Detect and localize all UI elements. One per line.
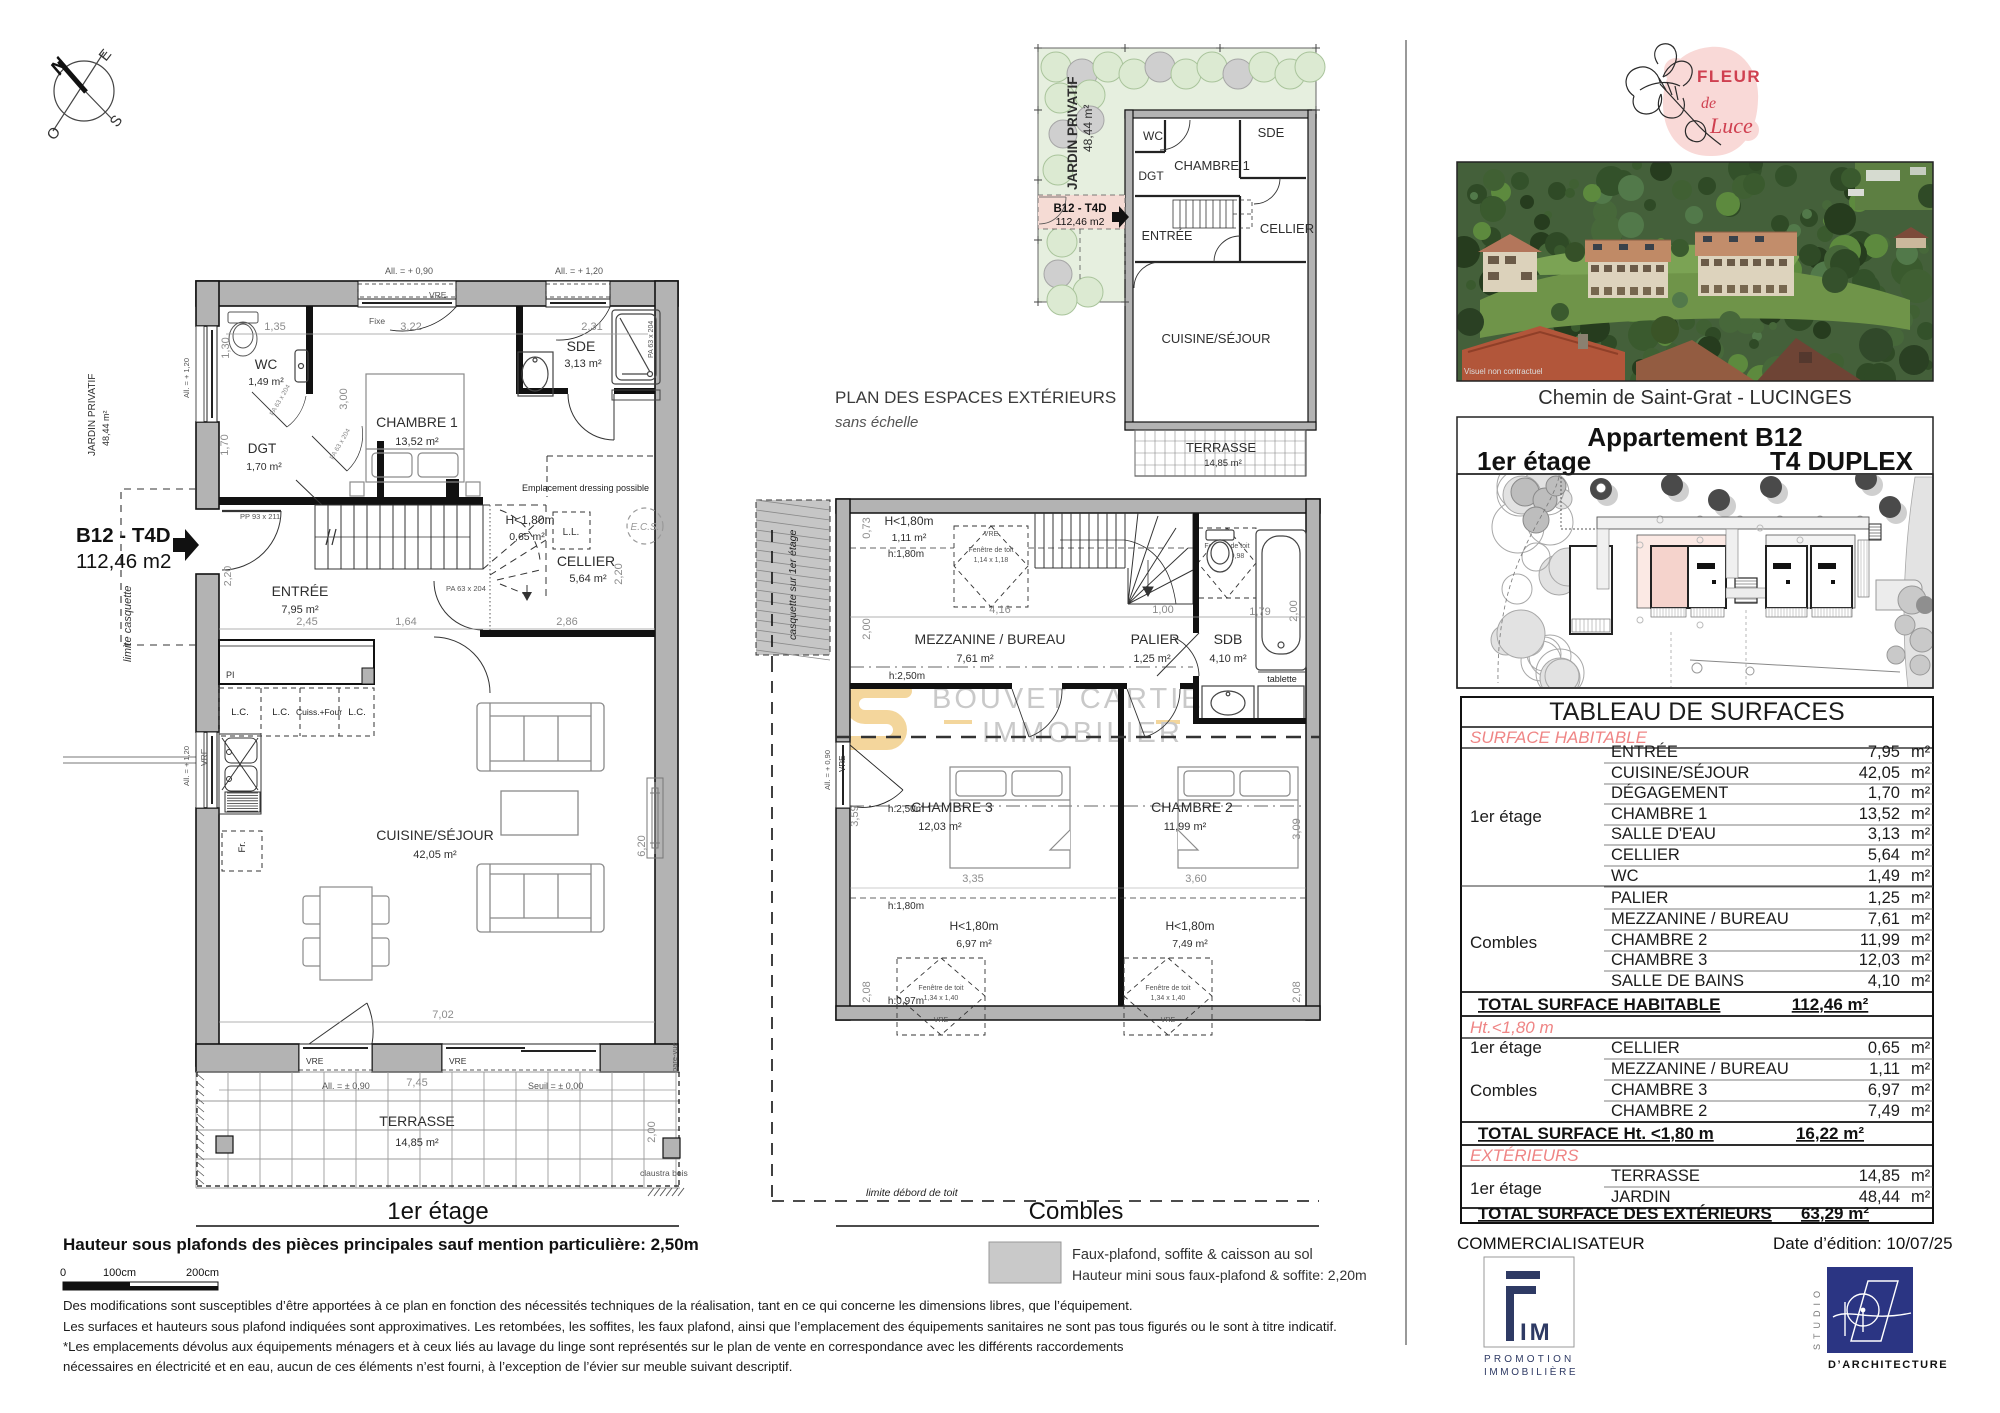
svg-text:1,00: 1,00 — [1152, 604, 1173, 616]
svg-text:13,52: 13,52 — [1859, 805, 1900, 823]
svg-text:TOTAL SURFACE HABITABLE: TOTAL SURFACE HABITABLE — [1478, 995, 1720, 1014]
svg-text:VRE: VRE — [199, 748, 209, 766]
svg-text:PLAN DES ESPACES EXTÉRIEURS: PLAN DES ESPACES EXTÉRIEURS — [835, 388, 1116, 407]
svg-text:h:2,50m: h:2,50m — [888, 804, 924, 815]
svg-text:Faux-plafond, soffite & caisso: Faux-plafond, soffite & caisson au sol — [1072, 1247, 1313, 1263]
svg-text:COMMERCIALISATEUR: COMMERCIALISATEUR — [1457, 1234, 1645, 1253]
svg-text:m²: m² — [1911, 1081, 1931, 1099]
svg-text:ENTRÉE: ENTRÉE — [272, 583, 329, 599]
svg-text:CELLIER: CELLIER — [1260, 221, 1314, 236]
svg-text:0,73: 0,73 — [861, 517, 873, 538]
svg-text:1er étage: 1er étage — [1470, 1179, 1542, 1198]
svg-text:m²: m² — [1911, 867, 1931, 885]
svg-text:All. = + 1,20: All. = + 1,20 — [182, 358, 191, 398]
svg-text:L.L.: L.L. — [563, 527, 580, 538]
svg-text:7,95: 7,95 — [1868, 743, 1900, 761]
svg-text:Fr.: Fr. — [237, 841, 248, 852]
svg-text:m²: m² — [1911, 910, 1931, 928]
svg-text:Fenêtre de toit: Fenêtre de toit — [918, 985, 963, 992]
svg-text:Combles: Combles — [1470, 1081, 1537, 1100]
svg-text:MEZZANINE / BUREAU: MEZZANINE / BUREAU — [1611, 1060, 1789, 1078]
svg-text:5,64 m²: 5,64 m² — [569, 573, 607, 585]
svg-text:2,00: 2,00 — [646, 1121, 658, 1142]
svg-text:S: S — [107, 112, 127, 130]
svg-text:2,00: 2,00 — [1288, 600, 1300, 621]
svg-text:0,65: 0,65 — [1868, 1039, 1900, 1057]
svg-text:TOTAL SURFACE DES EXTÉRIEURS: TOTAL SURFACE DES EXTÉRIEURS — [1478, 1204, 1772, 1223]
svg-text:1,70: 1,70 — [219, 434, 231, 455]
svg-text:PP 93 x 211: PP 93 x 211 — [240, 512, 280, 521]
svg-text:All. = + 0,90: All. = + 0,90 — [385, 266, 433, 276]
svg-text:Date d’édition: 10/07/25: Date d’édition: 10/07/25 — [1773, 1234, 1953, 1253]
svg-text:6,97 m²: 6,97 m² — [956, 938, 992, 950]
svg-text:TERRASSE: TERRASSE — [1186, 440, 1256, 455]
svg-text:CHAMBRE 2: CHAMBRE 2 — [1151, 799, 1233, 815]
svg-text:PROMOTION: PROMOTION — [1484, 1354, 1574, 1365]
svg-text:H<1,80m: H<1,80m — [884, 514, 933, 528]
svg-text:m²: m² — [1911, 931, 1931, 949]
svg-text:200cm: 200cm — [186, 1267, 219, 1279]
svg-text:SALLE D'EAU: SALLE D'EAU — [1611, 825, 1716, 843]
svg-text:5,64: 5,64 — [1868, 846, 1900, 864]
svg-text:2,08: 2,08 — [1291, 981, 1303, 1002]
svg-text:H<1,80m: H<1,80m — [505, 513, 554, 527]
svg-text:CHAMBRE 1: CHAMBRE 1 — [376, 414, 458, 430]
svg-text:1,34 x 1,40: 1,34 x 1,40 — [924, 995, 959, 1002]
svg-text:de: de — [1701, 95, 1716, 112]
svg-text:7,02: 7,02 — [432, 1009, 453, 1021]
svg-text:Fixe: Fixe — [369, 316, 385, 326]
svg-text:Chemin de Saint-Grat - LUCINGE: Chemin de Saint-Grat - LUCINGES — [1538, 387, 1851, 409]
svg-text:MEZZANINE / BUREAU: MEZZANINE / BUREAU — [1611, 910, 1789, 928]
svg-text:H<1,80m: H<1,80m — [1165, 919, 1214, 933]
svg-text:3,59: 3,59 — [849, 805, 861, 826]
svg-text:m²: m² — [1911, 1102, 1931, 1120]
svg-text:11,99: 11,99 — [1860, 931, 1900, 949]
svg-text:limite débord de toit: limite débord de toit — [866, 1187, 959, 1199]
svg-text:7,61: 7,61 — [1868, 910, 1900, 928]
svg-text:2,45: 2,45 — [296, 616, 317, 628]
svg-text:VRE: VRE — [306, 1056, 324, 1066]
svg-text:B12 - T4D: B12 - T4D — [76, 524, 171, 547]
svg-text:m²: m² — [1911, 825, 1931, 843]
svg-text:2,86: 2,86 — [556, 616, 577, 628]
svg-text:1,70: 1,70 — [1868, 784, 1900, 802]
svg-text:TABLEAU DE SURFACES: TABLEAU DE SURFACES — [1549, 698, 1844, 726]
svg-text:WC: WC — [255, 357, 278, 372]
svg-text:11,99 m²: 11,99 m² — [1164, 821, 1207, 833]
svg-text:CHAMBRE 3: CHAMBRE 3 — [1611, 1081, 1707, 1099]
svg-text:2,20: 2,20 — [222, 566, 234, 587]
svg-text:112,46 m²: 112,46 m² — [1792, 995, 1869, 1014]
svg-text:VRE: VRE — [1161, 1017, 1176, 1024]
svg-text:SDE: SDE — [1258, 125, 1285, 140]
svg-text:Combles: Combles — [1470, 933, 1537, 952]
svg-text:1,64: 1,64 — [395, 616, 416, 628]
svg-text:m²: m² — [1911, 1060, 1931, 1078]
svg-text:Fenêtre de toit: Fenêtre de toit — [968, 547, 1013, 554]
svg-text:claustra bois: claustra bois — [640, 1168, 688, 1178]
svg-text:IMMOBILIER: IMMOBILIER — [982, 717, 1183, 749]
svg-text:MEZZANINE / BUREAU: MEZZANINE / BUREAU — [915, 631, 1066, 647]
svg-text:14,85 m²: 14,85 m² — [1204, 458, 1242, 469]
svg-text:13,52 m²: 13,52 m² — [395, 436, 439, 448]
svg-text:m²: m² — [1911, 1188, 1931, 1206]
svg-text:1,11 m²: 1,11 m² — [892, 532, 927, 544]
svg-text:6,20: 6,20 — [636, 835, 648, 856]
svg-text:Emplacement dressing possible: Emplacement dressing possible — [522, 483, 649, 493]
svg-text:All. = + 1,20: All. = + 1,20 — [555, 266, 603, 276]
svg-text:6,97: 6,97 — [1868, 1081, 1900, 1099]
svg-text:T4 DUPLEX: T4 DUPLEX — [1770, 446, 1914, 476]
svg-text:1,35: 1,35 — [264, 321, 285, 333]
svg-text:Fenêtre de toit: Fenêtre de toit — [1145, 985, 1190, 992]
svg-text:All. = ± 0,90: All. = ± 0,90 — [322, 1081, 370, 1091]
svg-text:1er étage: 1er étage — [1470, 1038, 1542, 1057]
svg-text:L.C.: L.C. — [272, 707, 289, 718]
svg-text:WC: WC — [1143, 129, 1163, 143]
svg-text:1,49 m²: 1,49 m² — [248, 376, 284, 388]
svg-text:ENTRÉE: ENTRÉE — [1142, 228, 1193, 243]
svg-text:1,70 m²: 1,70 m² — [246, 461, 282, 473]
svg-text:3,22: 3,22 — [400, 321, 421, 333]
svg-text:CHAMBRE 2: CHAMBRE 2 — [1611, 1102, 1707, 1120]
svg-text:All. = + 0,90: All. = + 0,90 — [823, 750, 832, 790]
svg-text:PA 63 x 204: PA 63 x 204 — [446, 584, 486, 593]
svg-text:SDB: SDB — [1214, 631, 1243, 647]
svg-text:4,10: 4,10 — [1868, 972, 1900, 990]
svg-text:SDE: SDE — [567, 338, 596, 354]
svg-text:IM: IM — [1520, 1319, 1553, 1346]
svg-text:0: 0 — [60, 1267, 66, 1279]
svg-text:O: O — [44, 124, 65, 144]
svg-text:Luce: Luce — [1709, 113, 1753, 138]
svg-text:7,45: 7,45 — [406, 1077, 427, 1089]
svg-text:ENTRÉE: ENTRÉE — [1611, 742, 1678, 761]
svg-text:m²: m² — [1911, 951, 1931, 969]
svg-text:63,29 m²: 63,29 m² — [1801, 1204, 1869, 1223]
svg-text:DÉGAGEMENT: DÉGAGEMENT — [1611, 783, 1728, 802]
svg-text:7,95 m²: 7,95 m² — [281, 604, 319, 616]
svg-text:1er étage: 1er étage — [387, 1198, 488, 1225]
svg-text:3,13: 3,13 — [1868, 825, 1900, 843]
svg-text:4,16: 4,16 — [989, 604, 1010, 616]
svg-text:E.C.S.: E.C.S. — [631, 522, 660, 533]
svg-text:B12 - T4D: B12 - T4D — [1053, 203, 1106, 215]
svg-text:3,60: 3,60 — [1185, 873, 1206, 885]
svg-text:sans échelle: sans échelle — [835, 414, 918, 431]
svg-text:PALIER: PALIER — [1131, 631, 1180, 647]
svg-text:CUISINE/SÉJOUR: CUISINE/SÉJOUR — [376, 827, 493, 843]
svg-text:m²: m² — [1911, 1167, 1931, 1185]
svg-text:CELLIER: CELLIER — [557, 553, 615, 569]
svg-text:Les surfaces et hauteurs sous: Les surfaces et hauteurs sous plafond in… — [63, 1319, 1337, 1334]
svg-text:m²: m² — [1911, 784, 1931, 802]
svg-text:1er étage: 1er étage — [1470, 807, 1542, 826]
svg-text:VRE: VRE — [934, 1017, 949, 1024]
svg-text:VRE: VRE — [429, 290, 447, 300]
svg-text:Des modifications sont suscept: Des modifications sont susceptibles d’êt… — [63, 1298, 1133, 1313]
svg-text:PA 63 x 204: PA 63 x 204 — [269, 383, 293, 417]
svg-text:CHAMBRE 1: CHAMBRE 1 — [1611, 805, 1707, 823]
svg-text:2,31: 2,31 — [581, 321, 602, 333]
svg-text:Cuiss.+Four: Cuiss.+Four — [296, 707, 342, 717]
svg-text:h:2,50m: h:2,50m — [889, 671, 925, 682]
svg-text:2,00: 2,00 — [861, 618, 873, 639]
svg-text:PALIER: PALIER — [1611, 889, 1669, 907]
svg-text:m²: m² — [1911, 972, 1931, 990]
svg-text:7,61 m²: 7,61 m² — [956, 653, 994, 665]
svg-text:JARDIN PRIVATIF: JARDIN PRIVATIF — [87, 374, 98, 456]
svg-text:m²: m² — [1911, 805, 1931, 823]
svg-text:h:0,97m: h:0,97m — [888, 996, 924, 1007]
svg-text:Combles: Combles — [1029, 1198, 1124, 1225]
svg-text:CHAMBRE 3: CHAMBRE 3 — [1611, 951, 1707, 969]
svg-text:tablette: tablette — [1267, 674, 1297, 684]
svg-text:DGT: DGT — [1138, 169, 1164, 183]
svg-text:L.C.: L.C. — [231, 707, 248, 718]
svg-text:14,85: 14,85 — [1859, 1167, 1900, 1185]
svg-text:3,35: 3,35 — [962, 873, 983, 885]
svg-text:TOTAL SURFACE Ht. <1,80 m: TOTAL SURFACE Ht. <1,80 m — [1478, 1124, 1714, 1143]
svg-text:3,13 m²: 3,13 m² — [564, 358, 602, 370]
svg-text:CUISINE/SÉJOUR: CUISINE/SÉJOUR — [1611, 763, 1750, 782]
svg-text:0,65 m²: 0,65 m² — [509, 531, 545, 543]
svg-text:E: E — [96, 46, 116, 64]
svg-text:4,10 m²: 4,10 m² — [1209, 653, 1247, 665]
svg-text:h:1,80m: h:1,80m — [888, 549, 924, 560]
svg-text:3,00: 3,00 — [338, 388, 350, 409]
svg-text:1,49: 1,49 — [1868, 867, 1900, 885]
svg-text:m²: m² — [1911, 764, 1931, 782]
svg-text:12,03: 12,03 — [1859, 951, 1900, 969]
svg-text:STUDIO: STUDIO — [1812, 1286, 1822, 1350]
svg-text:WC: WC — [1611, 867, 1639, 885]
svg-text:PA 63 x 204: PA 63 x 204 — [648, 321, 655, 358]
svg-text:casquette sur 1er étage: casquette sur 1er étage — [787, 530, 799, 640]
svg-text:12,03 m²: 12,03 m² — [918, 821, 962, 833]
svg-text:D’ARCHITECTURE: D’ARCHITECTURE — [1828, 1359, 1948, 1371]
svg-text:3,09: 3,09 — [1291, 818, 1303, 839]
svg-text:48,44 m²: 48,44 m² — [1081, 105, 1095, 152]
svg-text:112,46 m2: 112,46 m2 — [1056, 216, 1105, 228]
svg-text:1,34 x 1,40: 1,34 x 1,40 — [1151, 995, 1186, 1002]
svg-text:TERRASSE: TERRASSE — [379, 1113, 454, 1129]
svg-text:PI: PI — [226, 670, 235, 680]
svg-text:Visuel non contractuel: Visuel non contractuel — [1464, 367, 1543, 376]
svg-text:*Les emplacements dévolus aux: *Les emplacements dévolus aux équipement… — [63, 1339, 1124, 1354]
svg-text:m²: m² — [1911, 1039, 1931, 1057]
svg-text:VRE: VRE — [449, 1056, 467, 1066]
svg-text:1er étage: 1er étage — [1477, 446, 1591, 476]
svg-text:42,05 m²: 42,05 m² — [413, 849, 457, 861]
svg-text:SALLE DE BAINS: SALLE DE BAINS — [1611, 972, 1744, 990]
svg-text:14,85 m²: 14,85 m² — [395, 1137, 439, 1149]
svg-text:7,49: 7,49 — [1868, 1102, 1900, 1120]
svg-text:m²: m² — [1911, 846, 1931, 864]
svg-text:7,49 m²: 7,49 m² — [1172, 938, 1208, 950]
svg-text:TERRASSE: TERRASSE — [1611, 1167, 1700, 1185]
svg-text:112,46 m2: 112,46 m2 — [76, 550, 171, 573]
svg-text:Seuil = ± 0,00: Seuil = ± 0,00 — [528, 1081, 583, 1091]
svg-text:IMMOBILIÈRE: IMMOBILIÈRE — [1484, 1365, 1578, 1378]
svg-text:CELLIER: CELLIER — [1611, 1039, 1680, 1057]
svg-text:1,30: 1,30 — [220, 337, 232, 358]
svg-text:100cm: 100cm — [103, 1267, 136, 1279]
svg-text:1,79: 1,79 — [1249, 606, 1270, 618]
svg-text:16,22 m²: 16,22 m² — [1796, 1124, 1864, 1143]
svg-text:m²: m² — [1911, 889, 1931, 907]
svg-text:CHAMBRE 2: CHAMBRE 2 — [1611, 931, 1707, 949]
svg-text:FLEUR: FLEUR — [1697, 67, 1761, 86]
svg-text:1,25: 1,25 — [1868, 889, 1900, 907]
svg-text:CHAMBRE 1: CHAMBRE 1 — [1174, 158, 1250, 173]
svg-text:2,08: 2,08 — [861, 981, 873, 1002]
svg-text:PA 63 x 204: PA 63 x 204 — [329, 427, 353, 461]
svg-text:1,25 m²: 1,25 m² — [1133, 653, 1171, 665]
svg-text:EXTÉRIEURS: EXTÉRIEURS — [1470, 1146, 1579, 1165]
svg-text:h:1,80m: h:1,80m — [888, 901, 924, 912]
svg-text:48,44 m²: 48,44 m² — [101, 410, 111, 446]
svg-text:1,11: 1,11 — [1869, 1060, 1900, 1078]
svg-text:All. = + 1,20: All. = + 1,20 — [182, 746, 191, 786]
svg-text:Hauteur mini sous faux-plafond: Hauteur mini sous faux-plafond & soffite… — [1072, 1267, 1367, 1283]
svg-text:nécessaires en électricité et: nécessaires en électricité et en eau, au… — [63, 1359, 792, 1374]
svg-text:VRE: VRE — [838, 756, 847, 772]
svg-text:CUISINE/SÉJOUR: CUISINE/SÉJOUR — [1161, 331, 1270, 346]
svg-text:42,05: 42,05 — [1859, 764, 1900, 782]
svg-text:2,20: 2,20 — [613, 563, 625, 584]
svg-text:VRE: VRE — [984, 531, 999, 538]
svg-text:Hauteur sous plafonds des pièc: Hauteur sous plafonds des pièces princip… — [63, 1235, 699, 1254]
svg-text:m²: m² — [1911, 743, 1931, 761]
svg-text:1,14 x 1,18: 1,14 x 1,18 — [974, 557, 1009, 564]
svg-text:limite casquette: limite casquette — [122, 586, 134, 662]
svg-text:DGT: DGT — [248, 441, 277, 456]
svg-text:H<1,80m: H<1,80m — [949, 919, 998, 933]
svg-text:Ht.<1,80 m: Ht.<1,80 m — [1470, 1018, 1554, 1037]
svg-text:CELLIER: CELLIER — [1611, 846, 1680, 864]
svg-text:JARDIN PRIVATIF: JARDIN PRIVATIF — [1065, 76, 1080, 190]
svg-text:L.C.: L.C. — [348, 707, 365, 718]
svg-text:pare-vue: pare-vue — [670, 1042, 679, 1072]
